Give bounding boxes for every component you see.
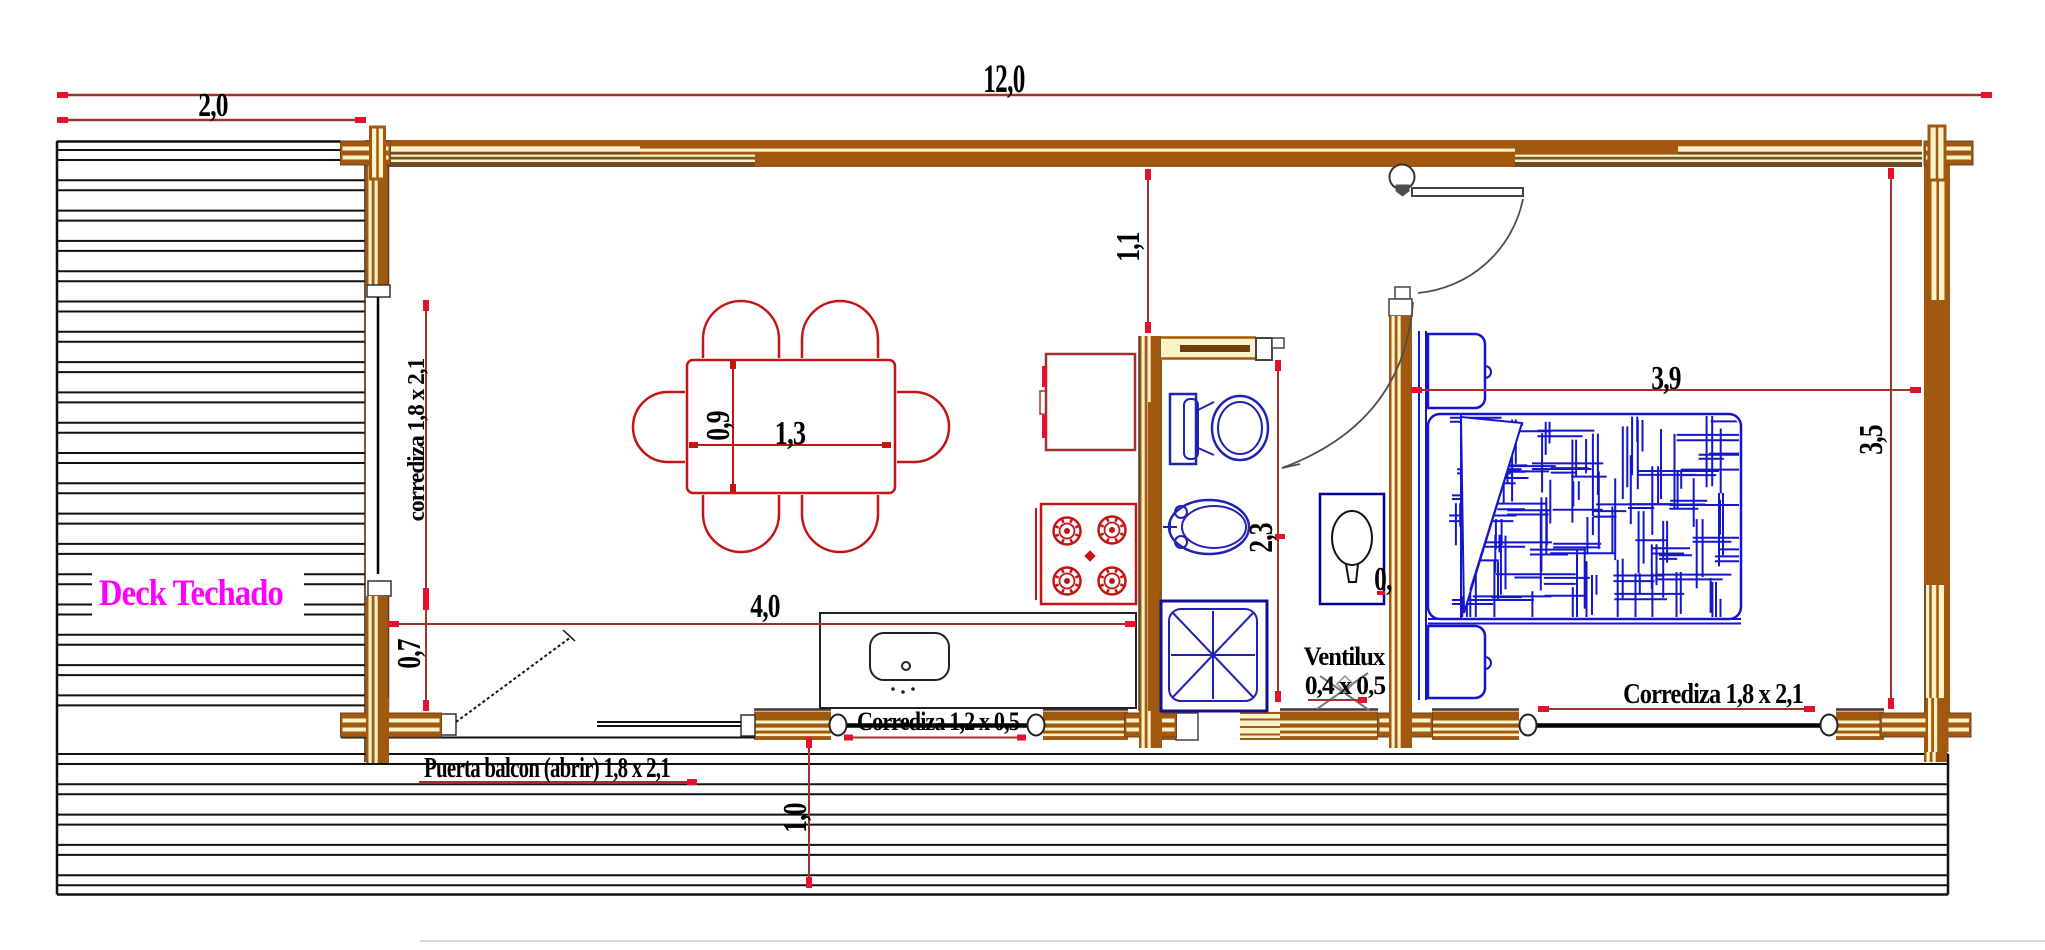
svg-text:1,1: 1,1 (1108, 232, 1146, 262)
svg-text:1,0: 1,0 (775, 803, 813, 833)
svg-text:0,9: 0,9 (698, 411, 736, 441)
svg-text:2,3: 2,3 (1241, 523, 1279, 553)
svg-text:Ventilux: Ventilux (1304, 642, 1386, 671)
svg-text:2,0: 2,0 (198, 85, 228, 123)
svg-text:Deck Techado: Deck Techado (99, 572, 283, 613)
svg-text:3,5: 3,5 (1851, 425, 1889, 455)
svg-text:4,0: 4,0 (750, 586, 780, 624)
svg-text:Corrediza 1,2 x 0,5: Corrediza 1,2 x 0,5 (857, 708, 1020, 736)
svg-text:Puerta balcon (abrir) 1,8 x 2,: Puerta balcon (abrir) 1,8 x 2,1 (424, 752, 670, 784)
svg-text:1,3: 1,3 (775, 414, 806, 452)
svg-text:12,0: 12,0 (983, 57, 1025, 101)
svg-text:0,7: 0,7 (389, 638, 427, 668)
svg-text:3,9: 3,9 (1651, 358, 1681, 396)
svg-text:0,: 0, (1374, 559, 1392, 597)
svg-text:corrediza 1,8 x 2,1: corrediza 1,8 x 2,1 (404, 358, 430, 521)
svg-text:Corrediza 1,8 x 2,1: Corrediza 1,8 x 2,1 (1623, 678, 1803, 709)
svg-text:0,4 x 0,5: 0,4 x 0,5 (1305, 671, 1385, 700)
